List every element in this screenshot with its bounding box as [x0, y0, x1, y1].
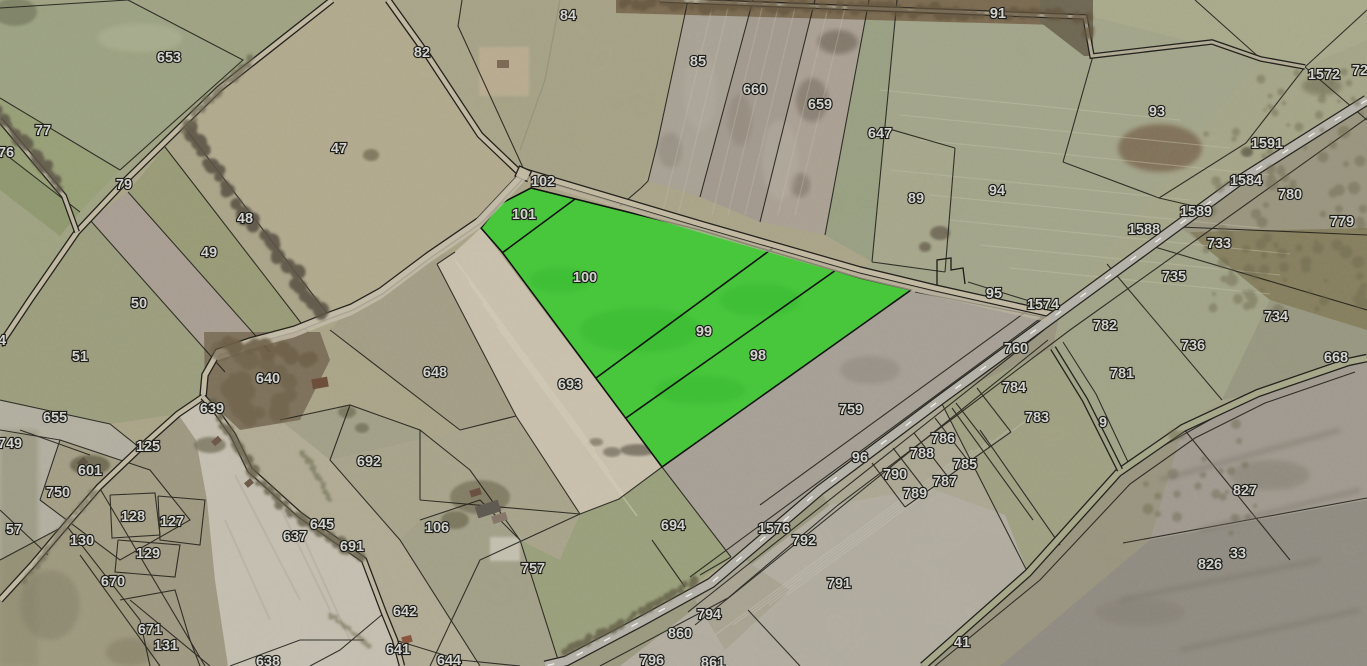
svg-text:99: 99 [696, 324, 712, 340]
svg-text:735: 735 [1162, 269, 1186, 285]
svg-text:1589: 1589 [1180, 204, 1212, 220]
svg-text:128: 128 [121, 509, 145, 525]
svg-text:783: 783 [1025, 410, 1049, 426]
svg-text:659: 659 [808, 97, 832, 113]
svg-text:780: 780 [1278, 187, 1302, 203]
svg-text:93: 93 [1149, 104, 1165, 120]
svg-text:791: 791 [827, 576, 851, 592]
svg-text:861: 861 [701, 655, 725, 666]
svg-text:98: 98 [750, 348, 766, 364]
svg-text:759: 759 [839, 402, 863, 418]
svg-text:1591: 1591 [1251, 136, 1283, 152]
svg-text:130: 130 [70, 533, 94, 549]
svg-text:788: 788 [910, 446, 934, 462]
svg-text:749: 749 [0, 436, 22, 452]
svg-text:826: 826 [1198, 557, 1222, 573]
svg-text:1588: 1588 [1128, 222, 1160, 238]
svg-text:860: 860 [668, 626, 692, 642]
svg-text:694: 694 [661, 518, 685, 534]
svg-text:779: 779 [1330, 214, 1354, 230]
svg-text:784: 784 [1002, 380, 1026, 396]
svg-text:648: 648 [423, 365, 447, 381]
svg-text:89: 89 [908, 191, 924, 207]
svg-text:693: 693 [558, 377, 582, 393]
svg-text:670: 670 [101, 574, 125, 590]
svg-text:655: 655 [43, 410, 67, 426]
svg-text:757: 757 [521, 561, 545, 577]
svg-text:85: 85 [690, 54, 706, 70]
svg-text:1584: 1584 [1230, 173, 1262, 189]
svg-text:94: 94 [989, 183, 1005, 199]
svg-text:642: 642 [393, 604, 417, 620]
svg-text:792: 792 [792, 533, 816, 549]
svg-text:760: 760 [1004, 341, 1028, 357]
svg-text:76: 76 [0, 145, 14, 161]
svg-text:33: 33 [1230, 546, 1246, 562]
svg-text:101: 101 [512, 207, 536, 223]
svg-text:1576: 1576 [758, 521, 790, 537]
svg-text:129: 129 [136, 546, 160, 562]
svg-text:72: 72 [1352, 63, 1367, 79]
svg-text:638: 638 [256, 654, 280, 666]
svg-text:691: 691 [340, 539, 364, 555]
svg-text:51: 51 [72, 349, 88, 365]
svg-text:787: 787 [933, 474, 957, 490]
svg-text:50: 50 [131, 296, 147, 312]
svg-text:95: 95 [986, 286, 1002, 302]
svg-text:48: 48 [237, 211, 253, 227]
svg-text:786: 786 [931, 431, 955, 447]
svg-text:1574: 1574 [1027, 297, 1059, 313]
svg-text:127: 127 [160, 514, 184, 530]
svg-text:91: 91 [990, 6, 1006, 22]
svg-text:641: 641 [386, 642, 410, 658]
svg-text:49: 49 [201, 245, 217, 261]
svg-text:645: 645 [310, 517, 334, 533]
svg-text:96: 96 [852, 450, 868, 466]
svg-text:794: 794 [697, 607, 721, 623]
svg-text:1572: 1572 [1308, 67, 1340, 83]
svg-text:671: 671 [138, 622, 162, 638]
svg-text:79: 79 [116, 177, 132, 193]
svg-text:647: 647 [868, 126, 892, 142]
svg-text:639: 639 [200, 401, 224, 417]
svg-text:692: 692 [357, 454, 381, 470]
svg-text:790: 790 [883, 467, 907, 483]
svg-text:785: 785 [953, 457, 977, 473]
svg-text:750: 750 [46, 485, 70, 501]
svg-text:4: 4 [0, 333, 6, 349]
svg-text:41: 41 [954, 635, 970, 651]
svg-text:781: 781 [1110, 366, 1134, 382]
svg-text:640: 640 [256, 371, 280, 387]
svg-text:9: 9 [1099, 415, 1107, 431]
svg-text:653: 653 [157, 50, 181, 66]
svg-text:131: 131 [154, 638, 178, 654]
svg-text:106: 106 [425, 520, 449, 536]
svg-text:601: 601 [78, 463, 102, 479]
svg-text:644: 644 [437, 653, 461, 666]
svg-text:82: 82 [414, 45, 430, 61]
svg-text:637: 637 [283, 529, 307, 545]
svg-text:796: 796 [640, 653, 664, 666]
svg-text:827: 827 [1233, 483, 1257, 499]
svg-text:668: 668 [1324, 350, 1348, 366]
svg-text:125: 125 [136, 439, 160, 455]
svg-text:660: 660 [743, 82, 767, 98]
svg-text:47: 47 [331, 141, 347, 157]
svg-text:782: 782 [1093, 318, 1117, 334]
svg-text:102: 102 [531, 174, 555, 190]
svg-text:84: 84 [560, 8, 576, 24]
svg-text:736: 736 [1181, 338, 1205, 354]
svg-text:734: 734 [1264, 309, 1288, 325]
svg-text:57: 57 [6, 522, 22, 538]
svg-text:733: 733 [1207, 236, 1231, 252]
svg-text:100: 100 [573, 270, 597, 286]
svg-text:789: 789 [903, 486, 927, 502]
svg-text:77: 77 [35, 123, 51, 139]
